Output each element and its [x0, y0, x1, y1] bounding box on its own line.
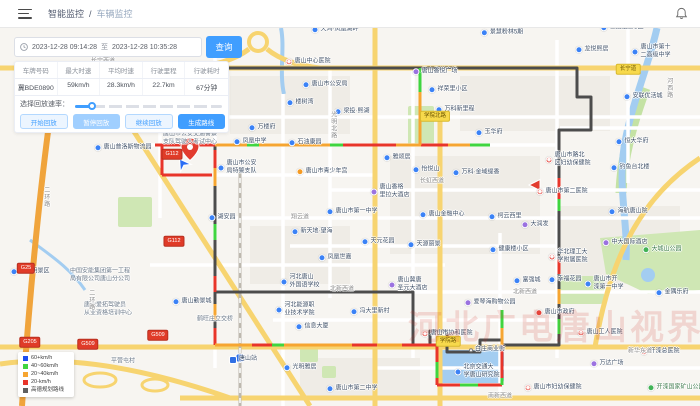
legend-label: 40~60km/h	[31, 364, 58, 370]
railway	[236, 168, 244, 406]
date-start-value[interactable]: 2023-12-28 09:14:28	[32, 44, 97, 51]
notification-bell-icon[interactable]	[675, 7, 688, 20]
stats-row: 车牌号码最大时速平均时速行驶里程行驶耗时	[15, 62, 228, 79]
date-end-value[interactable]: 2023-12-28 10:35:28	[112, 44, 177, 51]
rate-slider-track[interactable]	[75, 105, 222, 108]
query-button[interactable]: 查询	[206, 36, 242, 58]
stats-header-cell: 最大时速	[58, 62, 101, 78]
stats-header-cell: 车牌号码	[15, 62, 58, 78]
legend-swatch	[23, 380, 28, 385]
stats-header-cell: 平均时速	[100, 62, 143, 78]
stats-header-cell: 行驶耗时	[185, 62, 228, 78]
legend-label: 20~40km/h	[31, 372, 58, 378]
legend-item: 60+km/h	[23, 356, 70, 362]
pause-playback-button[interactable]: 暂停回放	[73, 114, 121, 129]
clock-icon	[20, 43, 28, 51]
legend-swatch	[23, 388, 28, 393]
resume-playback-button[interactable]: 继续回放	[125, 114, 173, 129]
legend-label: 高德规划路线	[31, 388, 64, 394]
breadcrumb-separator: /	[89, 9, 92, 19]
stats-table: 车牌号码最大时速平均时速行驶里程行驶耗时冀BDE089059km/h28.3km…	[15, 62, 228, 96]
legend-item: 20~40km/h	[23, 372, 70, 378]
legend-label: 60+km/h	[31, 356, 52, 362]
playback-rate-label: 选择回放速率：	[20, 99, 69, 109]
legend-item: 20-km/h	[23, 380, 70, 386]
breadcrumb: 智能监控 / 车辆监控	[48, 7, 133, 20]
playback-rate-row: 选择回放速率：	[15, 93, 228, 113]
date-separator: 至	[101, 42, 108, 52]
top-header: 智能监控 / 车辆监控	[0, 0, 700, 28]
breadcrumb-current: 车辆监控	[97, 7, 133, 20]
legend-label: 20-km/h	[31, 380, 51, 386]
generate-route-button[interactable]: 生成路线	[178, 114, 226, 129]
pond	[641, 268, 655, 282]
breadcrumb-parent[interactable]: 智能监控	[48, 7, 84, 20]
start-pin-marker	[181, 138, 199, 161]
legend-swatch	[23, 372, 28, 377]
start-playback-button[interactable]: 开始回放	[20, 114, 68, 129]
date-range-input[interactable]: 2023-12-28 09:14:28 至 2023-12-28 10:35:2…	[14, 37, 202, 57]
legend-item: 40~60km/h	[23, 364, 70, 370]
playback-buttons: 开始回放暂停回放继续回放生成路线	[20, 114, 225, 129]
trip-panel: 车牌号码最大时速平均时速行驶里程行驶耗时冀BDE089059km/h28.3km…	[14, 61, 229, 133]
legend-item: 高德规划路线	[23, 388, 70, 394]
speed-legend: 60+km/h40~60km/h20~40km/h20-km/h高德规划路线	[18, 352, 74, 397]
vehicle-monitor-screen: 智能监控 / 车辆监控	[0, 0, 700, 406]
stats-header-cell: 行驶里程	[143, 62, 186, 78]
legend-swatch	[23, 364, 28, 369]
rate-slider-handle[interactable]	[88, 102, 96, 110]
legend-swatch	[23, 356, 28, 361]
menu-toggle-icon[interactable]	[18, 9, 32, 19]
